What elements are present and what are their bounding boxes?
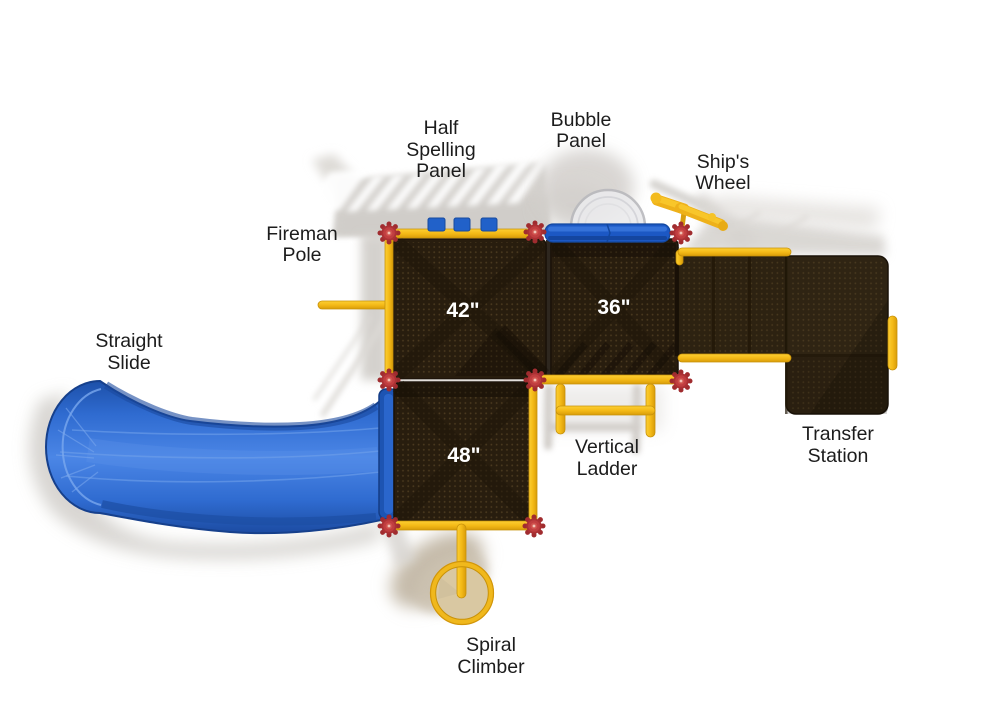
svg-text:Ship's: Ship's [697,151,750,173]
svg-text:Slide: Slide [107,352,150,374]
svg-text:Climber: Climber [457,656,525,678]
svg-text:Spelling: Spelling [406,139,475,161]
svg-text:42": 42" [446,299,479,322]
svg-text:Half: Half [424,117,459,139]
svg-text:48": 48" [447,444,480,467]
svg-text:Fireman: Fireman [266,223,338,245]
svg-text:Ladder: Ladder [577,458,638,480]
svg-text:Panel: Panel [556,130,606,152]
svg-text:Vertical: Vertical [575,436,639,458]
svg-text:Station: Station [808,445,869,467]
svg-text:36": 36" [597,296,630,319]
svg-text:Spiral: Spiral [466,634,516,656]
svg-text:Straight: Straight [95,330,163,352]
svg-text:Wheel: Wheel [695,172,750,194]
svg-text:Transfer: Transfer [802,423,874,445]
svg-text:Panel: Panel [416,160,466,182]
svg-text:Pole: Pole [282,244,321,266]
svg-text:Bubble: Bubble [551,109,612,131]
